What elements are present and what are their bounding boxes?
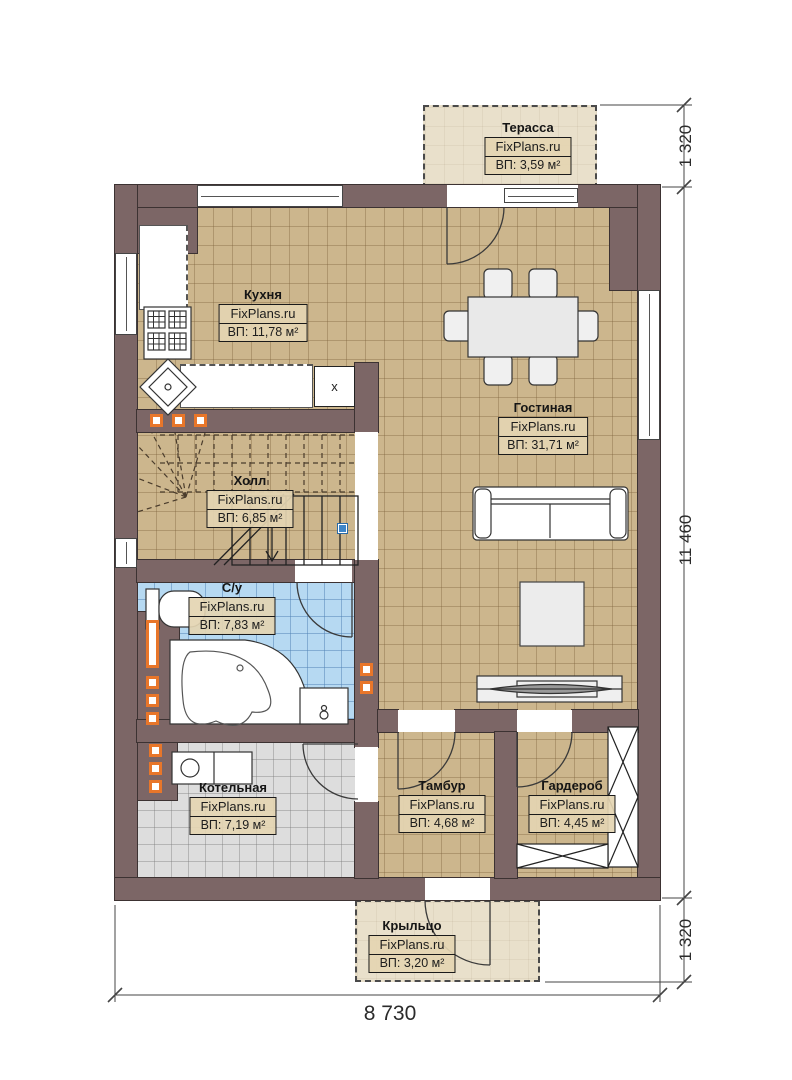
room-label-boiler: Котельная FixPlans.ru ВП: 7,19 м² [189, 780, 276, 835]
room-area: ВП: 7,83 м² [189, 617, 274, 634]
vent-block [172, 414, 185, 427]
brand-watermark: FixPlans.ru [190, 798, 275, 817]
brand-watermark: FixPlans.ru [369, 936, 454, 955]
room-info-box: FixPlans.ru ВП: 3,20 м² [368, 935, 455, 973]
kitchen-appliances [140, 307, 196, 415]
brand-watermark: FixPlans.ru [399, 796, 484, 815]
kitchen-sink [140, 359, 196, 415]
room-label-hall: Холл FixPlans.ru ВП: 6,85 м² [206, 473, 293, 528]
room-name: С/у [188, 580, 275, 595]
room-area: ВП: 7,19 м² [190, 817, 275, 834]
stove [144, 307, 191, 359]
room-label-tambour: Тамбур FixPlans.ru ВП: 4,68 м² [398, 778, 485, 833]
room-info-box: FixPlans.ru ВП: 7,19 м² [189, 797, 276, 835]
room-area: ВП: 11,78 м² [220, 324, 307, 341]
room-name: Терасса [484, 120, 571, 135]
room-area: ВП: 3,20 м² [369, 955, 454, 972]
terrace-door [447, 207, 504, 264]
bathroom-vanity [300, 688, 348, 724]
room-info-box: FixPlans.ru ВП: 31,71 м² [498, 417, 588, 455]
vent-block [146, 712, 159, 725]
vent-block [146, 676, 159, 689]
room-info-box: FixPlans.ru ВП: 4,45 м² [528, 795, 615, 833]
vent-slot [146, 620, 159, 668]
room-info-box: FixPlans.ru ВП: 6,85 м² [206, 490, 293, 528]
room-label-bathroom: С/у FixPlans.ru ВП: 7,83 м² [188, 580, 275, 635]
room-label-porch: Крыльцо FixPlans.ru ВП: 3,20 м² [368, 918, 455, 973]
bathtub [170, 640, 310, 725]
coffee-table [520, 582, 584, 646]
room-area: ВП: 3,59 м² [485, 157, 570, 174]
room-name: Крыльцо [368, 918, 455, 933]
room-label-wardrobe: Гардероб FixPlans.ru ВП: 4,45 м² [528, 778, 615, 833]
room-info-box: FixPlans.ru ВП: 11,78 м² [219, 304, 308, 342]
dining-table [468, 297, 578, 357]
room-name: Тамбур [398, 778, 485, 793]
vent-block [194, 414, 207, 427]
brand-watermark: FixPlans.ru [207, 491, 292, 510]
vent-block [149, 762, 162, 775]
brand-watermark: FixPlans.ru [529, 796, 614, 815]
dim-right-side: 11 460 [676, 495, 696, 585]
selection-handle[interactable] [338, 524, 347, 533]
sofa [473, 487, 628, 540]
room-label-terrace: Терасса FixPlans.ru ВП: 3,59 м² [484, 120, 571, 175]
floor-plan-canvas: x [0, 0, 792, 1080]
dining-set [444, 269, 598, 385]
brand-watermark: FixPlans.ru [485, 138, 570, 157]
dim-bottom-width: 8 730 [340, 1002, 440, 1026]
room-name: Кухня [219, 287, 308, 302]
vent-block [149, 744, 162, 757]
room-name: Холл [206, 473, 293, 488]
bathroom-door [297, 582, 352, 637]
vent-block [360, 681, 373, 694]
brand-watermark: FixPlans.ru [499, 418, 587, 437]
room-area: ВП: 6,85 м² [207, 510, 292, 527]
vent-block [150, 414, 163, 427]
boiler-door [303, 744, 358, 799]
room-info-box: FixPlans.ru ВП: 4,68 м² [398, 795, 485, 833]
room-info-box: FixPlans.ru ВП: 7,83 м² [188, 597, 275, 635]
brand-watermark: FixPlans.ru [220, 305, 307, 324]
room-area: ВП: 4,45 м² [529, 815, 614, 832]
brand-watermark: FixPlans.ru [189, 598, 274, 617]
room-area: ВП: 4,68 м² [399, 815, 484, 832]
dim-right-top: 1 320 [676, 101, 696, 191]
dim-right-bottom: 1 320 [676, 895, 696, 985]
room-name: Гардероб [528, 778, 615, 793]
vent-block [360, 663, 373, 676]
room-area: ВП: 31,71 м² [499, 437, 587, 454]
room-label-kitchen: Кухня FixPlans.ru ВП: 11,78 м² [219, 287, 308, 342]
room-info-box: FixPlans.ru ВП: 3,59 м² [484, 137, 571, 175]
vent-block [149, 780, 162, 793]
room-label-living: Гостиная FixPlans.ru ВП: 31,71 м² [498, 400, 588, 455]
tv-stand [477, 676, 622, 702]
room-name: Гостиная [498, 400, 588, 415]
room-name: Котельная [189, 780, 276, 795]
vent-block [146, 694, 159, 707]
